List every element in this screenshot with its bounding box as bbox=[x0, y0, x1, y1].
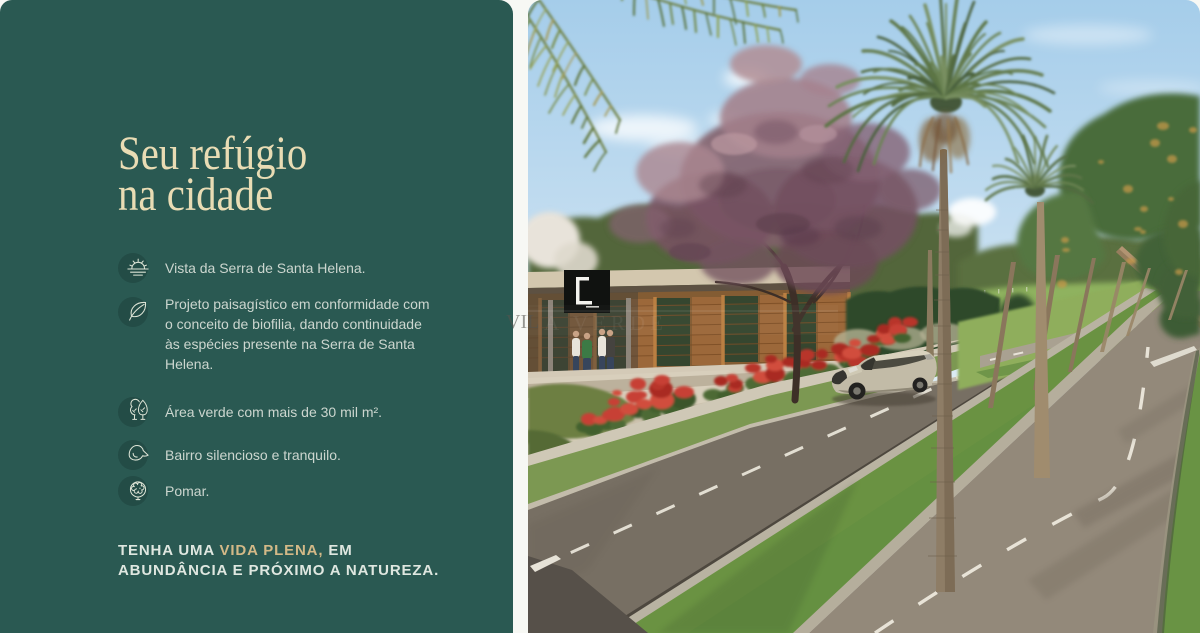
svg-text:VIL: VIL bbox=[528, 311, 539, 335]
svg-text:A VERDE: A VERDE bbox=[544, 311, 668, 335]
